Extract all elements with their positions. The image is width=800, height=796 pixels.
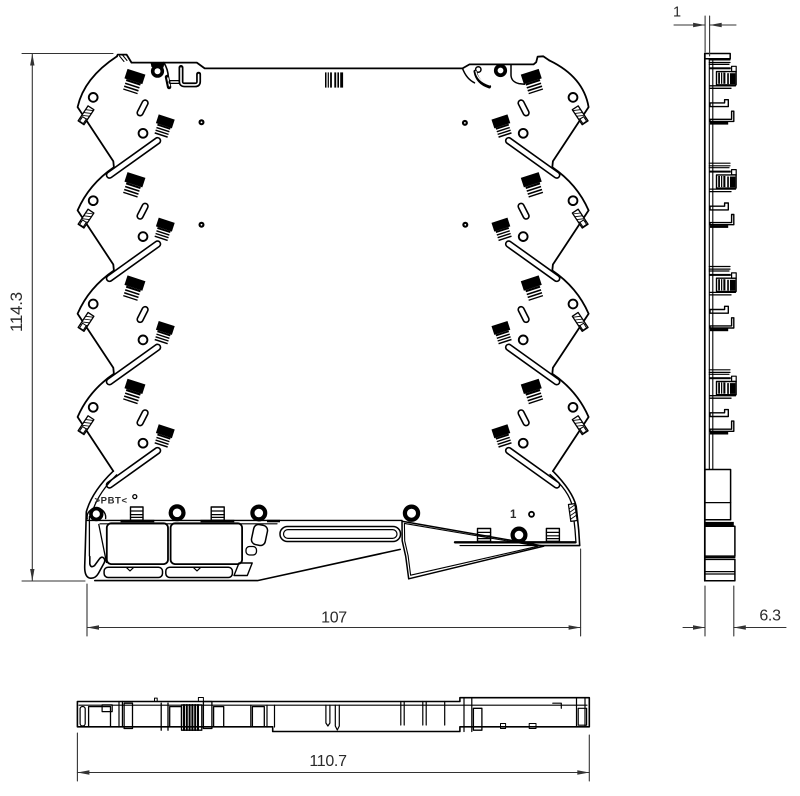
svg-text:1: 1 [510,509,517,521]
svg-text:110.7: 110.7 [309,753,347,770]
svg-text:107: 107 [321,610,347,627]
svg-text:114.3: 114.3 [7,292,26,332]
svg-text:1: 1 [673,5,681,21]
svg-text:>PBT<: >PBT< [95,496,128,507]
svg-text:6.3: 6.3 [759,608,781,625]
